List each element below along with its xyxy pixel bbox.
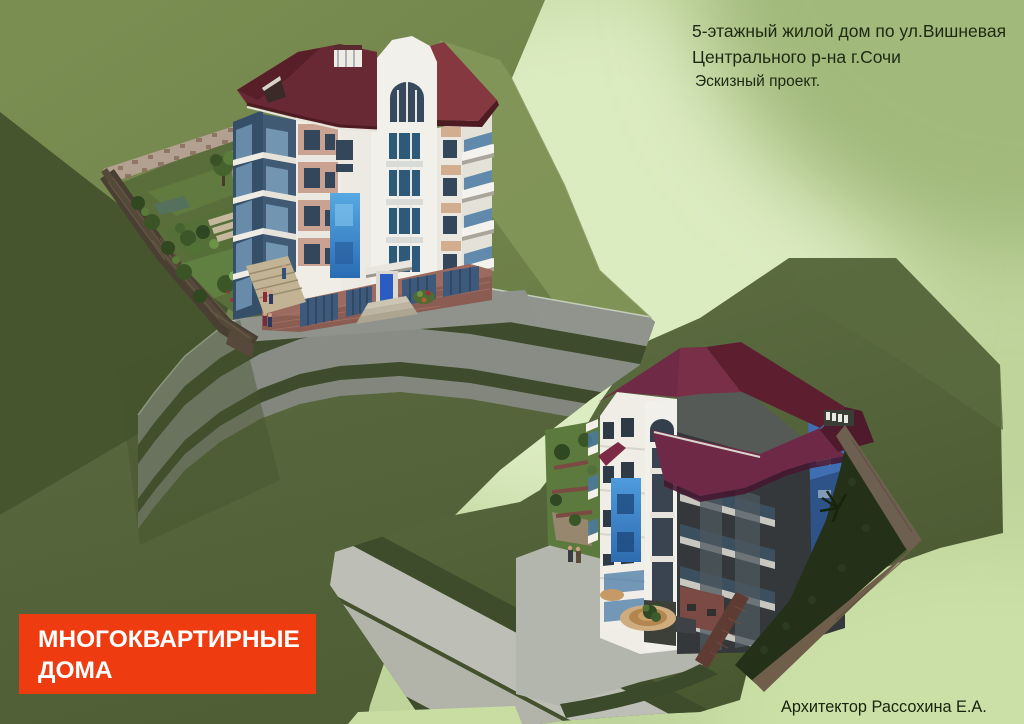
svg-text:ДОМА: ДОМА <box>38 657 113 684</box>
svg-text:Центрального р-на г.Сочи: Центрального р-на г.Сочи <box>692 47 901 67</box>
svg-text:Архитектор Рассохина Е.А.: Архитектор Рассохина Е.А. <box>781 698 987 716</box>
svg-text:Эскизный проект.: Эскизный проект. <box>695 73 820 90</box>
svg-text:МНОГОКВАРТИРНЫЕ: МНОГОКВАРТИРНЫЕ <box>38 626 300 653</box>
svg-text:5-этажный жилой дом по ул.Вишн: 5-этажный жилой дом по ул.Вишневая <box>692 21 1006 41</box>
